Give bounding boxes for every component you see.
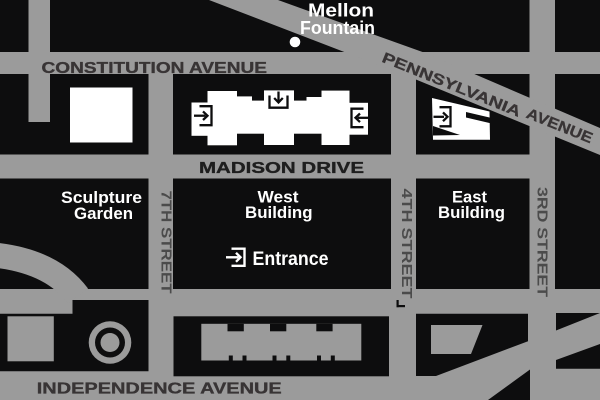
svg-text:Entrance: Entrance xyxy=(253,249,329,270)
svg-text:Building: Building xyxy=(438,204,505,222)
svg-text:CONSTITUTION AVENUE: CONSTITUTION AVENUE xyxy=(42,60,268,77)
svg-text:Building: Building xyxy=(245,204,313,222)
svg-text:INDEPENDENCE AVENUE: INDEPENDENCE AVENUE xyxy=(37,380,282,397)
svg-text:3RD STREET: 3RD STREET xyxy=(534,187,551,297)
svg-text:4TH STREET: 4TH STREET xyxy=(398,189,415,299)
svg-text:Garden: Garden xyxy=(74,205,133,223)
svg-text:7TH STREET: 7TH STREET xyxy=(158,191,175,294)
svg-text:Fountain: Fountain xyxy=(300,18,375,38)
svg-text:MADISON DRIVE: MADISON DRIVE xyxy=(199,160,364,177)
